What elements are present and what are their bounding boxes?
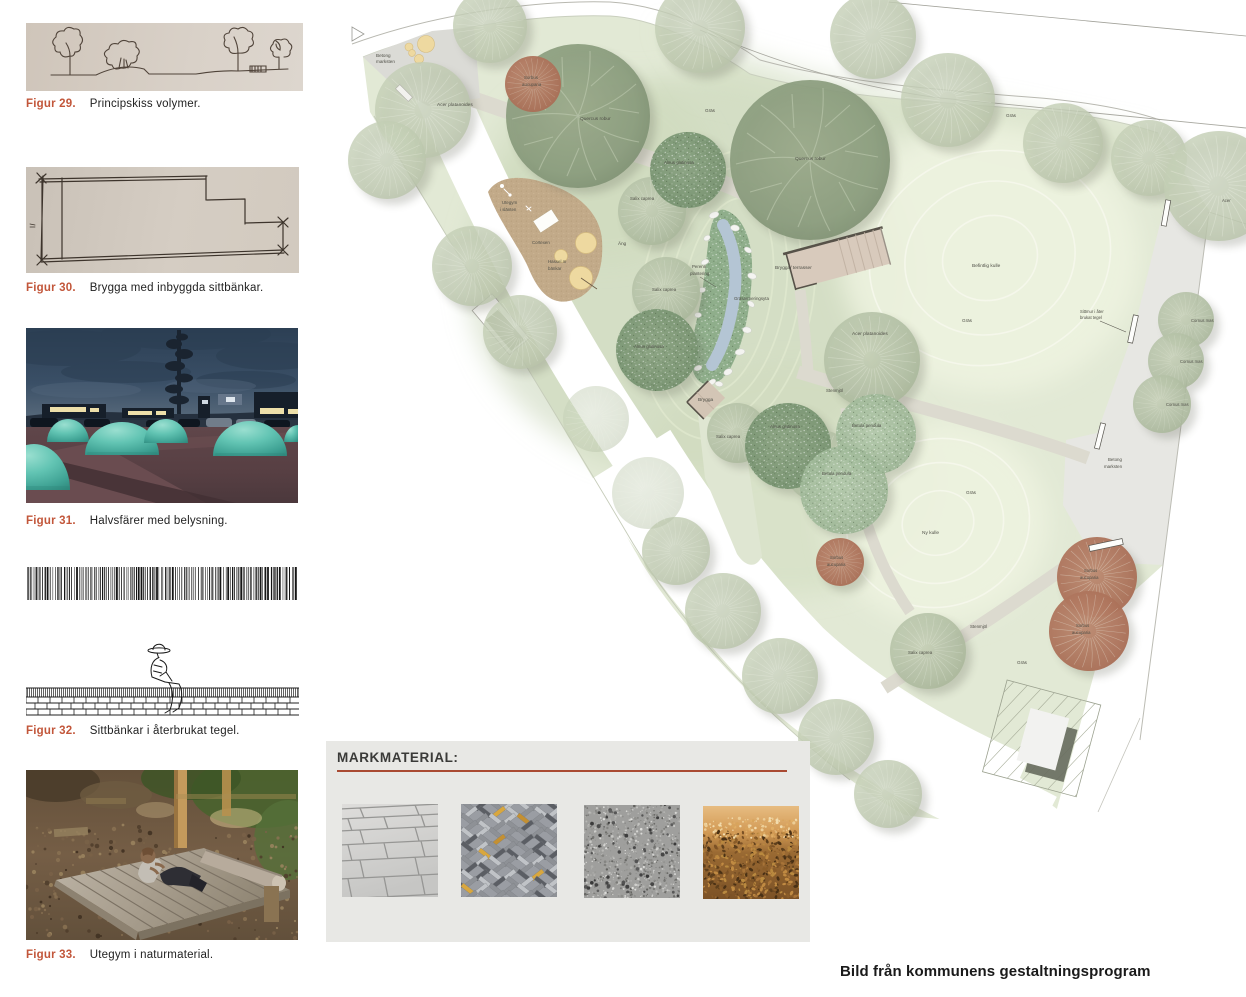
svg-text:Cornus mas: Cornus mas [1166,402,1189,407]
svg-text:Brygga: Brygga [698,397,714,403]
svg-text:Gräs: Gräs [962,318,973,323]
svg-text:Sorbus: Sorbus [1076,623,1089,628]
svg-text:aucuparia: aucuparia [522,82,542,87]
svg-text:Äng: Äng [618,240,627,246]
svg-text:Betong: Betong [1108,457,1122,462]
svg-text:marksten: marksten [1104,464,1123,469]
svg-text:aucuparia: aucuparia [1072,630,1091,635]
svg-text:Cortexen: Cortexen [532,240,550,245]
svg-text:Gräs: Gräs [1006,113,1017,118]
svg-text:Acer platanoides: Acer platanoides [852,331,888,337]
svg-text:Utegym: Utegym [502,200,517,205]
svg-text:Betula pendula: Betula pendula [852,423,882,428]
svg-text:i slänten: i slänten [500,207,517,212]
svg-text:Salix caprea: Salix caprea [652,287,677,292]
svg-text:brukat tegel: brukat tegel [1080,315,1102,320]
svg-text:Perenn: Perenn [692,264,707,269]
svg-text:plantering: plantering [690,271,710,276]
svg-text:marksten: marksten [376,59,395,64]
svg-text:Quercus robur: Quercus robur [580,116,611,122]
svg-text:Alnus glutinosa: Alnus glutinosa [770,424,800,429]
svg-text:Betula pendula: Betula pendula [822,471,852,476]
svg-text:Cornus mas: Cornus mas [1191,318,1214,323]
svg-text:Stenmjöl: Stenmjöl [826,388,843,393]
svg-text:Acer platanoides: Acer platanoides [437,102,473,108]
svg-text:Quercus robur: Quercus robur [795,156,826,162]
svg-text:Salix caprea: Salix caprea [630,196,655,201]
svg-text:Alnus glutinosa: Alnus glutinosa [664,160,694,165]
svg-text:Betong: Betong [376,53,391,58]
svg-text:Cornus mas: Cornus mas [1180,359,1203,364]
svg-text:Salix caprea: Salix caprea [908,650,933,655]
svg-text:Gräs: Gräs [1017,660,1028,665]
svg-text:Salix caprea: Salix caprea [716,434,741,439]
svg-text:Alnus glutinosa: Alnus glutinosa [634,344,664,349]
svg-text:Gräs: Gräs [966,490,977,495]
svg-text:aucuparia: aucuparia [1080,575,1099,580]
svg-text:Hassel m: Hassel m [548,259,567,264]
svg-text:Sorbus: Sorbus [524,75,539,80]
svg-text:Ny kulle: Ny kulle [922,530,939,536]
svg-text:aucuparia: aucuparia [827,562,846,567]
svg-text:Sittmur i åter: Sittmur i åter [1080,309,1104,314]
svg-text:Sorbus: Sorbus [1084,568,1097,573]
svg-text:Acer: Acer [1222,198,1231,203]
svg-text:Stenmjöl: Stenmjöl [970,624,987,629]
svg-text:Sorbus: Sorbus [830,555,843,560]
svg-text:Gräsarmeringsyta: Gräsarmeringsyta [734,296,769,301]
svg-text:Brygga/ terrasser: Brygga/ terrasser [775,265,812,271]
svg-text:Befintlig kulle: Befintlig kulle [972,263,1001,269]
svg-text:bänkar: bänkar [548,266,562,271]
svg-text:Gräs: Gräs [705,108,716,113]
